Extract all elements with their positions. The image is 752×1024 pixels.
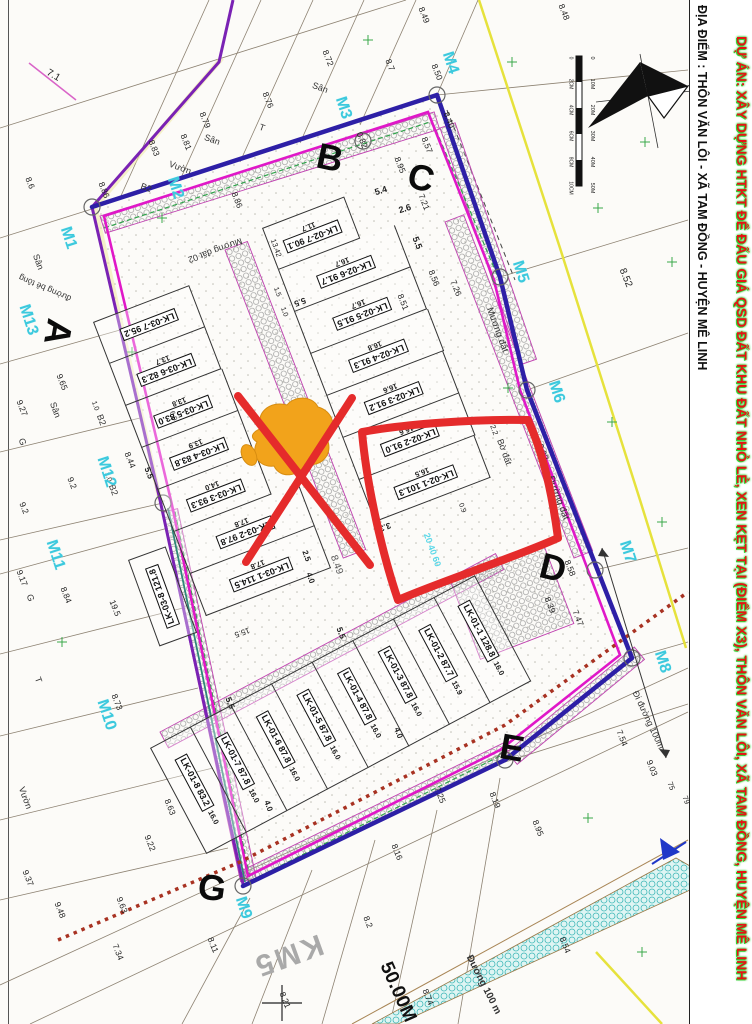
- hand-annotations: [0, 0, 752, 1024]
- title-margin: ĐỊA ĐIỂM : THÔN VĂN LÔI - XÃ TAM ĐỒNG - …: [689, 0, 752, 1024]
- red-selection-loop: [362, 420, 558, 600]
- location-text: ĐỊA ĐIỂM : THÔN VĂN LÔI - XÃ TAM ĐỒNG - …: [695, 5, 709, 370]
- cadastral-map-sheet: LK-03-7 95.2LK-03-6 82.313.7LK-03-5 83.0…: [0, 0, 752, 1024]
- project-title-text: DỰ ÁN: XÂY DỰNG HTKT ĐỂ ĐẤU GIÁ QSD ĐẤT …: [734, 36, 750, 980]
